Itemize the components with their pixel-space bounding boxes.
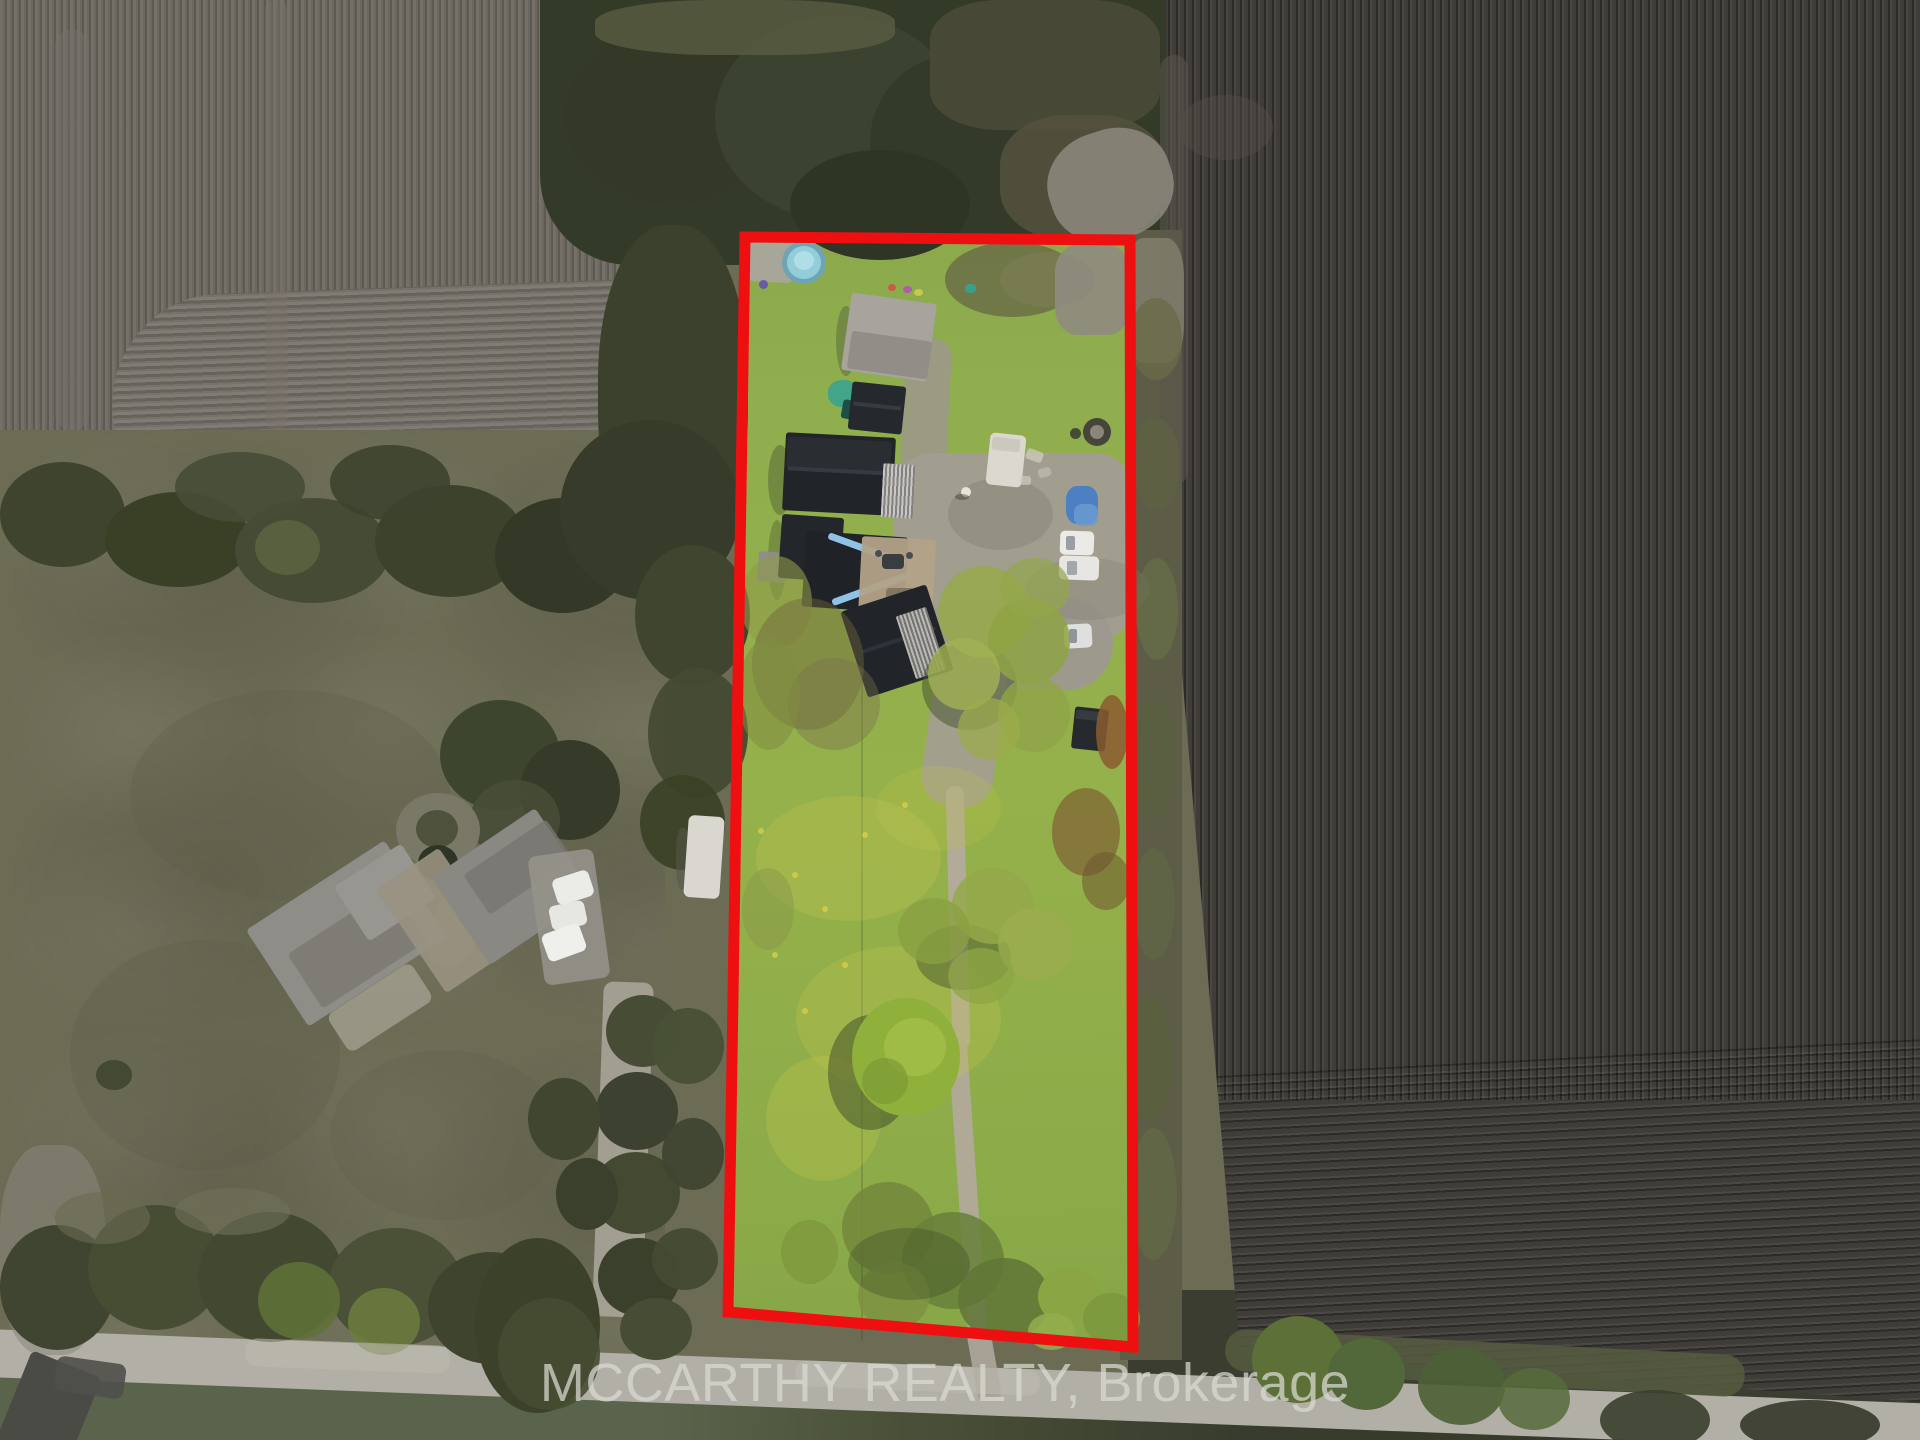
brokerage-watermark: MCCARTHY REALTY, Brokerage bbox=[540, 1352, 1350, 1414]
property-boundary-line bbox=[728, 237, 1133, 1347]
aerial-listing-photo: MCCARTHY REALTY, Brokerage bbox=[0, 0, 1920, 1440]
property-boundary-overlay bbox=[0, 0, 1920, 1440]
